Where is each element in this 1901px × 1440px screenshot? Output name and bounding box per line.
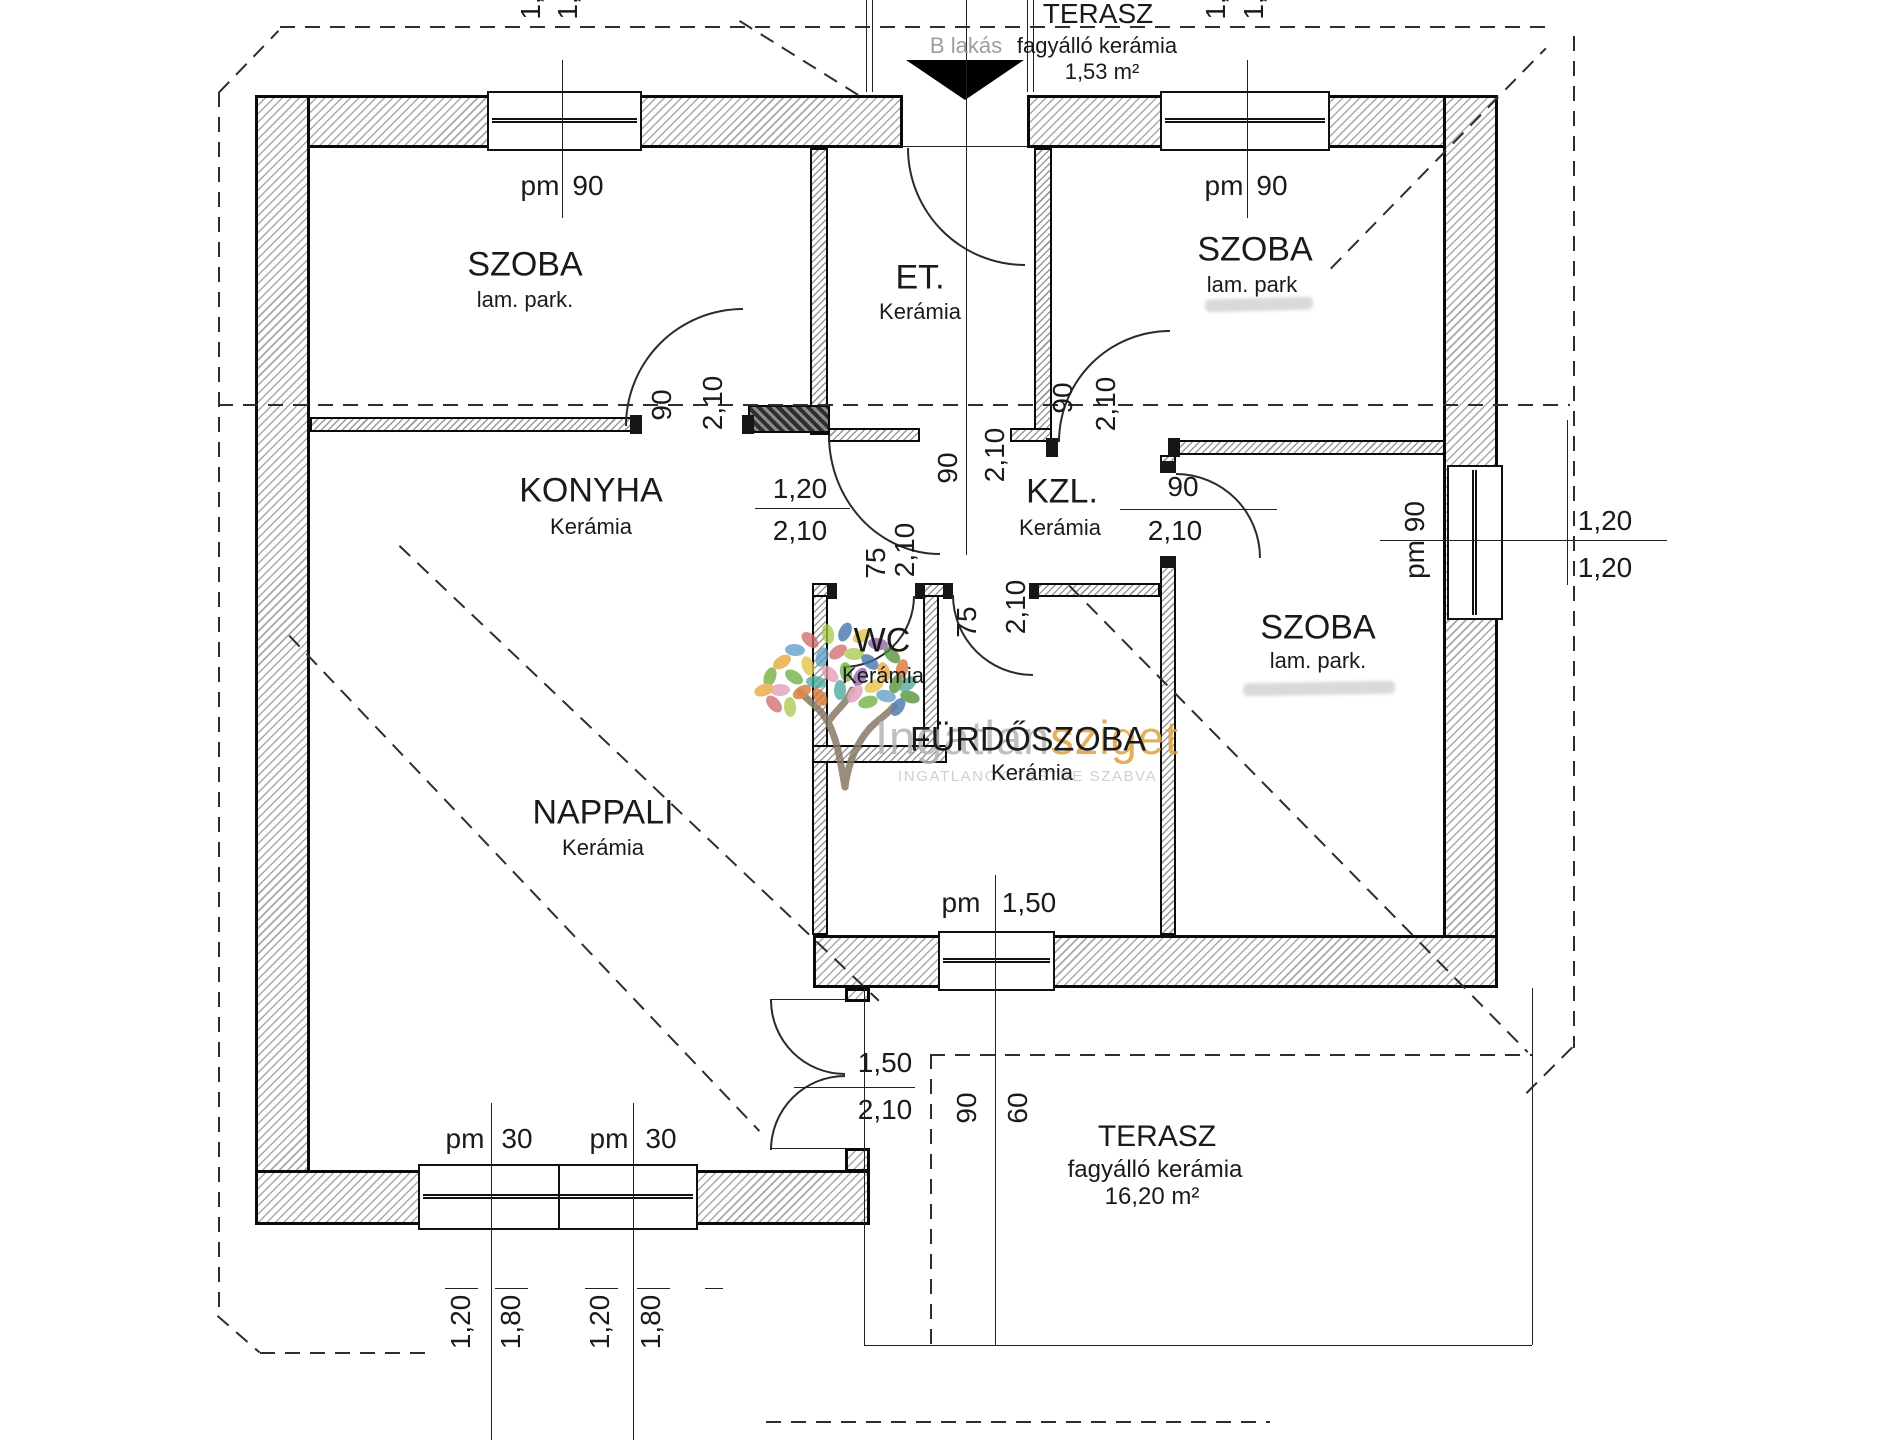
dim-door-szoba-tl-height: 2,10 xyxy=(697,376,729,431)
dim-top-cut-4: 1, xyxy=(1238,0,1270,20)
room-wc-floor: Kerámia xyxy=(842,663,924,689)
window-furdoszoba xyxy=(938,931,1055,991)
dim-door-wc-width: 75 xyxy=(860,547,892,578)
dim-bottom-dim-2: 1,80 xyxy=(495,1295,527,1350)
room-terasz-bottom-floor: fagyálló kerámia xyxy=(1068,1156,1243,1184)
dim-window-tl-pm: pm xyxy=(521,170,560,202)
terasz-edge xyxy=(864,988,865,1345)
window-szoba-tl xyxy=(487,91,642,151)
dim-tick xyxy=(637,1288,670,1289)
door-jamb xyxy=(915,583,925,599)
porch-line xyxy=(872,0,873,92)
dim-pass-konyha-height: 2,10 xyxy=(773,515,828,547)
watermark: Ingatlansziget INGATLANOK TESTRE SZABVA xyxy=(750,622,1210,797)
dim-door-furdo-width: 75 xyxy=(951,606,983,637)
door-jamb xyxy=(1046,438,1058,457)
window-szoba-r xyxy=(1447,465,1503,620)
dim-window-bottom-pm: pm xyxy=(942,887,981,919)
dim-top-cut-2: 1, xyxy=(552,0,584,20)
dim-tick xyxy=(705,1288,723,1289)
dim-door-furdo-height: 2,10 xyxy=(1000,580,1032,635)
dashed-eaves-left xyxy=(218,92,220,1315)
dim-door-terasz-width: 1,50 xyxy=(858,1047,913,1079)
dim-window-bl1-size: 30 xyxy=(501,1123,532,1155)
dim-tick xyxy=(495,1288,528,1289)
wall-bottom-right xyxy=(813,935,1498,988)
room-szoba-tl-floor: lam. park. xyxy=(477,287,574,313)
dashed-eaves-bottom-left xyxy=(260,1352,430,1354)
wall-et-left xyxy=(810,148,828,435)
dim-window-tr-pm: pm xyxy=(1205,170,1244,202)
window-szoba-tr xyxy=(1160,91,1330,151)
room-nappali-name: NAPPALI xyxy=(532,794,673,833)
dim-pass-konyha-width: 1,20 xyxy=(773,473,828,505)
fraction-bar xyxy=(1120,509,1277,510)
dim-door-hall-height: 2,10 xyxy=(979,428,1011,483)
door-jamb xyxy=(827,583,837,599)
dim-line xyxy=(562,60,563,218)
dim-door-szoba-tl-width: 90 xyxy=(646,389,678,420)
dim-door-szoba-r-height: 2,10 xyxy=(1148,515,1203,547)
dim-line xyxy=(966,0,967,555)
dim-line xyxy=(1247,60,1248,218)
dim-door-hall-width: 90 xyxy=(932,452,964,483)
dashed-eaves-top xyxy=(280,26,1545,28)
room-nappali-floor: Kerámia xyxy=(562,835,644,861)
dim-window-tl-size: 90 xyxy=(572,170,603,202)
dim-bottom-dim-4: 1,80 xyxy=(635,1295,667,1350)
dim-window-bl2-size: 30 xyxy=(645,1123,676,1155)
dim-window-bl2-pm: pm xyxy=(590,1123,629,1155)
dim-line xyxy=(633,1103,634,1440)
dim-tick xyxy=(445,1288,478,1289)
floor-plan: Ingatlansziget INGATLANOK TESTRE SZABVA xyxy=(0,0,1901,1440)
door-jamb xyxy=(742,415,754,434)
dashed-roof-hip xyxy=(289,635,761,1132)
room-et-floor: Kerámia xyxy=(879,299,961,325)
room-kzl-name: KZL. xyxy=(1026,473,1098,512)
wall-left xyxy=(255,95,310,1225)
fraction-bar xyxy=(755,508,850,509)
dim-right-dim-upper: 1,20 xyxy=(1578,505,1633,537)
room-kzl-floor: Kerámia xyxy=(1019,515,1101,541)
threshold-line xyxy=(903,146,1027,147)
wall-junction-block xyxy=(748,405,830,433)
unit-label: B lakás xyxy=(930,33,1002,59)
fraction-bar xyxy=(794,1087,915,1088)
room-szoba-r-floor: lam. park. xyxy=(1270,648,1367,674)
room-konyha-floor: Kerámia xyxy=(550,514,632,540)
dashed-terasz-bottom xyxy=(766,1421,1270,1423)
dim-line xyxy=(995,875,996,1345)
wall-szoba-tr-bottom xyxy=(1170,440,1445,455)
wall-furdo-top xyxy=(1033,583,1160,597)
door-arc-hall xyxy=(828,435,940,555)
dim-door-szoba-r-width: 90 xyxy=(1167,471,1198,503)
wall-terasz-door-stub-bottom xyxy=(845,1148,870,1172)
room-wc-name: WC xyxy=(854,622,911,661)
dim-window-bl1-pm: pm xyxy=(446,1123,485,1155)
room-terasz-bottom-area: 16,20 m² xyxy=(1105,1183,1200,1211)
door-jamb xyxy=(1160,556,1176,568)
erased-area-note xyxy=(1243,681,1395,697)
door-leaf xyxy=(770,999,845,1000)
room-et-name: ET. xyxy=(895,259,944,298)
wall-szoba-tl-bottom xyxy=(310,417,640,432)
window-mullion xyxy=(558,1166,560,1228)
dim-top-cut-1: 1, xyxy=(515,0,547,20)
room-szoba-tr-floor: lam. park xyxy=(1207,272,1297,298)
door-leaf xyxy=(770,1148,845,1149)
dim-window-tr-size: 90 xyxy=(1256,170,1287,202)
erased-area-note xyxy=(1205,297,1313,313)
room-szoba-r-name: SZOBA xyxy=(1260,609,1375,648)
room-furdoszoba-floor: Kerámia xyxy=(991,760,1073,786)
dashed-corner xyxy=(218,30,279,93)
dim-bottom-dim-3: 1,20 xyxy=(584,1295,616,1350)
dim-window-right-pm: pm 90 xyxy=(1399,501,1431,579)
room-terasz-top-name: TERASZ xyxy=(1043,0,1153,30)
dim-tick xyxy=(585,1288,618,1289)
room-furdoszoba-name: FÜRDŐSZOBA xyxy=(910,721,1146,760)
entrance-marker-icon xyxy=(906,60,1024,100)
dim-door-wc-height: 2,10 xyxy=(889,523,921,578)
dashed-eaves-right xyxy=(1573,36,1575,1048)
room-terasz-top-floor: fagyálló kerámia xyxy=(1017,33,1177,59)
terasz-edge xyxy=(1532,988,1533,1345)
room-terasz-bottom-name: TERASZ xyxy=(1098,1120,1216,1154)
dim-window-bottom-size: 1,50 xyxy=(1002,887,1057,919)
porch-line xyxy=(866,0,867,92)
terasz-edge xyxy=(864,1345,1532,1346)
room-konyha-name: KONYHA xyxy=(519,472,663,511)
dashed-roof-hip xyxy=(1330,48,1547,270)
room-terasz-top-area: 1,53 m² xyxy=(1065,59,1140,85)
dim-door-szoba-tr-height: 2,10 xyxy=(1090,377,1122,432)
dim-right-dim-lower: 1,20 xyxy=(1578,552,1633,584)
dashed-corner xyxy=(217,1315,261,1353)
dim-terasz-dim-90: 90 xyxy=(951,1092,983,1123)
dim-top-cut-3: 1, xyxy=(1200,0,1232,20)
dashed-roof-hip xyxy=(739,20,862,98)
dim-terasz-dim-60: 60 xyxy=(1002,1092,1034,1123)
dashed-terasz-left xyxy=(930,1054,932,1345)
dashed-terasz-top xyxy=(930,1054,1532,1056)
dim-door-terasz-height: 2,10 xyxy=(858,1094,913,1126)
dashed-section-line xyxy=(218,404,1570,406)
window-nappali xyxy=(418,1164,698,1230)
dim-bottom-dim-1: 1,20 xyxy=(445,1295,477,1350)
room-szoba-tr-name: SZOBA xyxy=(1197,231,1312,270)
dim-line xyxy=(491,1103,492,1440)
door-arc-terasz-upper xyxy=(770,1000,845,1075)
dim-door-szoba-tr-width: 90 xyxy=(1047,382,1079,413)
dim-line xyxy=(1567,420,1568,585)
room-szoba-tl-name: SZOBA xyxy=(467,246,582,285)
